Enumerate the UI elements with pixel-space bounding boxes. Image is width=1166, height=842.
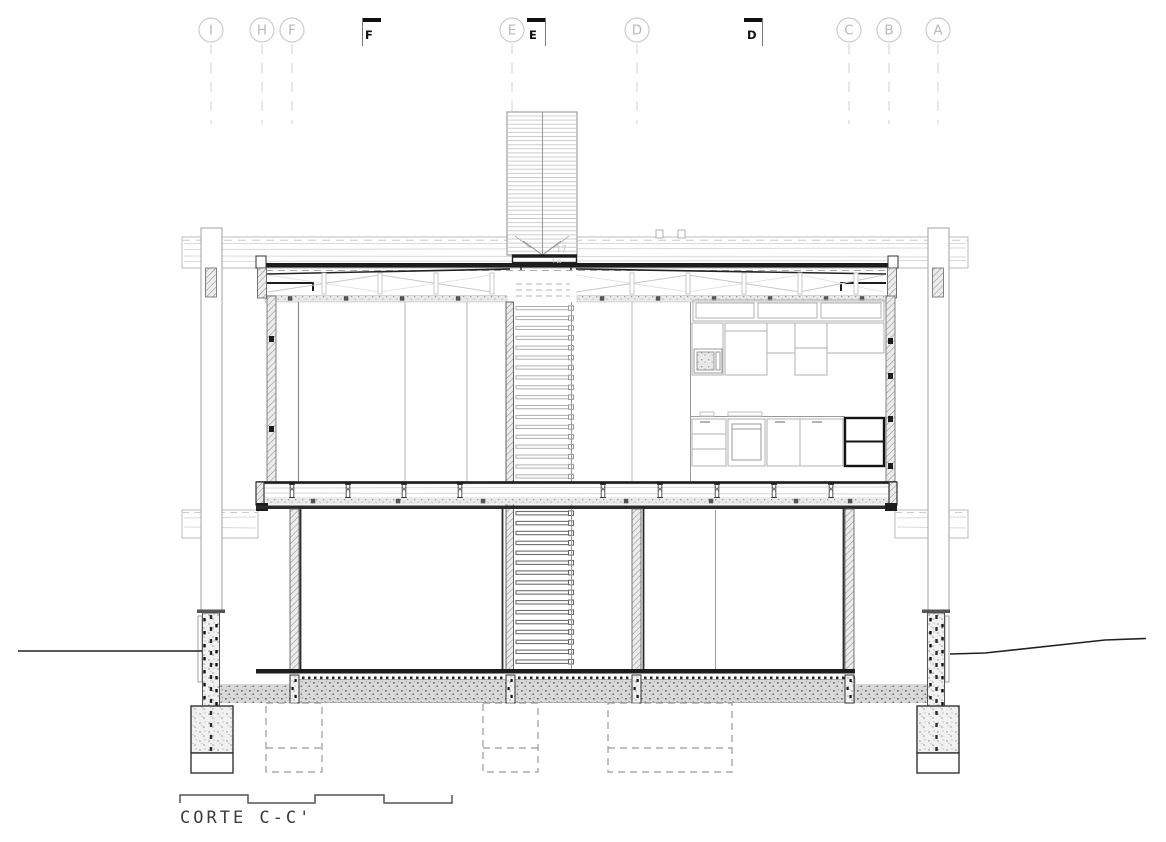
upper-interior-partitions	[299, 302, 691, 481]
grid-bubble-label: B	[884, 23, 893, 39]
exterior-column-right	[928, 228, 949, 612]
title-step-bar	[180, 795, 452, 803]
grid-bubble-C: C	[837, 18, 861, 124]
ground-floor-sill	[256, 669, 855, 674]
hidden-footings	[266, 703, 732, 772]
grid-bubble-E: E	[500, 18, 524, 112]
grid-bubble-label: I	[209, 23, 213, 39]
stair-flight-upper	[516, 306, 574, 479]
grid-bubble-D: D	[625, 18, 649, 124]
grid-bubble-F: F	[280, 18, 304, 124]
upper-wall-left	[256, 256, 276, 482]
grid-bubble-label: D	[632, 23, 642, 39]
ground-floor-post	[290, 509, 299, 673]
exterior-column-left	[201, 228, 222, 612]
grid-bubble-label: C	[844, 23, 853, 39]
section-marker-F: F	[362, 18, 381, 46]
section-drawing: IHFEDCBAFED	[0, 0, 1166, 842]
level-annotation: 17	[556, 245, 567, 255]
grid-bubble-label: A	[933, 23, 943, 39]
ground-lines	[18, 639, 1146, 655]
ground-floor-post	[845, 509, 854, 673]
open-shelf-unit	[845, 418, 884, 466]
section-marker-D: D	[744, 18, 763, 46]
oven	[728, 419, 765, 466]
footing-right	[917, 706, 959, 753]
grid-bubble-label: H	[257, 23, 267, 39]
stair	[506, 284, 574, 673]
grid-bubble-I: I	[199, 18, 223, 124]
section-marker-E: E	[527, 18, 546, 46]
ground-floor-post	[632, 509, 641, 673]
upper-wall-right	[886, 256, 898, 482]
grid-bubble-label: E	[508, 23, 517, 39]
grid-markers: IHFEDCBAFED	[199, 18, 950, 124]
ground-slab	[217, 675, 928, 703]
title-block: CORTE C-C'	[180, 795, 452, 828]
section-marker-label: D	[747, 28, 757, 42]
stair-flight-lower	[516, 511, 574, 664]
grid-bubble-label: F	[288, 23, 296, 39]
grid-bubble-H: H	[250, 18, 274, 124]
kitchen-cabinets	[690, 300, 884, 466]
grid-bubble-A: A	[926, 18, 950, 124]
grid-bubble-B: B	[877, 18, 901, 124]
section-marker-label: E	[529, 28, 537, 42]
section-marker-label: F	[365, 28, 373, 42]
microwave	[694, 349, 722, 373]
architectural-section-sheet: IHFEDCBAFED	[0, 0, 1166, 842]
drawing-title: CORTE C-C'	[180, 808, 312, 828]
